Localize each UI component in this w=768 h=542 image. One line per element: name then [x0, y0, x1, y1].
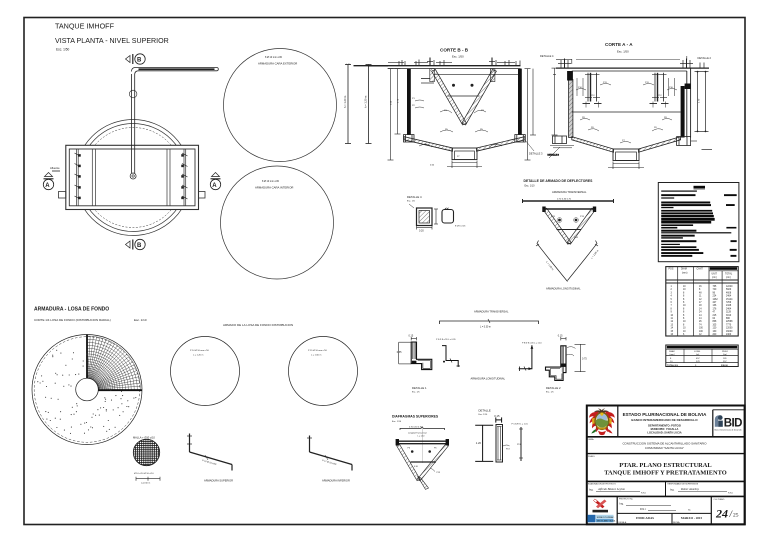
svg-text:0.70 0.30 0.70: 0.70 0.30 0.70: [409, 426, 423, 428]
svg-text:DIAM: DIAM: [681, 268, 687, 271]
svg-text:L = 1.20 m: L = 1.20 m: [193, 355, 203, 357]
svg-text:Esc. 1/5: Esc. 1/5: [546, 392, 554, 394]
svg-text:7770: 7770: [726, 324, 732, 326]
svg-text:ARMADURA TRANSVERSAL: ARMADURA TRANSVERSAL: [552, 190, 587, 194]
svg-text:RESPONSABLE DE SUPERVISION: RESPONSABLE DE SUPERVISION: [668, 483, 699, 486]
svg-text:DETALLE 1: DETALLE 1: [412, 386, 427, 390]
svg-text:OBRA:: OBRA:: [588, 438, 594, 441]
svg-text:Esc. 1/5: Esc. 1/5: [407, 201, 416, 203]
svg-text:0.20: 0.20: [419, 230, 424, 233]
svg-text:(mm): (mm): [682, 272, 688, 274]
svg-text:L = 3.30 m: L = 3.30 m: [480, 327, 491, 329]
svg-text:0.15: 0.15: [409, 335, 414, 338]
svg-text:C.H. PLANO:: C.H. PLANO:: [714, 498, 726, 501]
svg-text:L=0.50 m: L=0.50 m: [141, 483, 150, 485]
svg-text:Rober Azurduy: Rober Azurduy: [680, 487, 700, 491]
svg-text:R.N.I.: R.N.I.: [640, 508, 646, 511]
svg-text:DETALLE 3: DETALLE 3: [548, 154, 560, 157]
svg-text:LOCALIDAD: SANTA LUCIA: LOCALIDAD: SANTA LUCIA: [647, 430, 681, 434]
svg-text:R.N.I.: R.N.I.: [641, 493, 647, 495]
svg-text:BANCO INTERAMERICANO DE DESARR: BANCO INTERAMERICANO DE DESARROLLO: [631, 418, 698, 422]
svg-text:MIN. M. AMB. Y AGUA: MIN. M. AMB. Y AGUA: [597, 520, 616, 523]
svg-text:Esc. 1/50: Esc. 1/50: [452, 55, 464, 59]
svg-text:Esc. 1/10: Esc. 1/10: [134, 318, 147, 322]
svg-text:PTAR. PLANO ESTRUCTURAL: PTAR. PLANO ESTRUCTURAL: [619, 462, 711, 469]
svg-text:25: 25: [733, 513, 739, 519]
svg-text:A: A: [212, 183, 217, 189]
svg-text:15144: 15144: [726, 299, 733, 301]
svg-text:Ing.: Ing.: [589, 488, 594, 492]
svg-text:4608: 4608: [726, 292, 732, 294]
svg-text:Alfredo Blanco Leyton: Alfredo Blanco Leyton: [597, 487, 626, 491]
svg-text:0.55: 0.55: [397, 351, 402, 354]
svg-text:DETALLE 2: DETALLE 2: [698, 56, 712, 60]
svg-text:DETALLE DE ARMADO DE DEFLECTOR: DETALLE DE ARMADO DE DEFLECTORES: [524, 179, 594, 183]
svg-text:TOTAL KG: TOTAL KG: [667, 364, 678, 367]
svg-text:UNIT: UNIT: [712, 274, 718, 276]
svg-text:24: 24: [715, 507, 728, 521]
svg-text:Ing.: Ing.: [620, 502, 625, 506]
svg-text:B: B: [137, 243, 142, 249]
svg-text:1128: 1128: [726, 312, 732, 314]
svg-text:(cm): (cm): [726, 277, 731, 279]
svg-text:8 Ø 10 mm c/20: 8 Ø 10 mm c/20: [265, 56, 283, 59]
svg-text:TANQUE IMHOFF Y PRETRATAMIENTO: TANQUE IMHOFF Y PRETRATAMIENTO: [604, 470, 727, 477]
svg-text:0.15: 0.15: [494, 414, 500, 418]
svg-text:PLANO:: PLANO:: [588, 455, 595, 458]
svg-text:LONG: LONG: [694, 351, 700, 353]
svg-text:CONSTRUCCION SISTEMA DE ALCANT: CONSTRUCCION SISTEMA DE ALCANTARILLADO S…: [622, 442, 707, 446]
svg-text:8 Ø 10 mm c/20: 8 Ø 10 mm c/20: [262, 180, 280, 183]
svg-text:Esc. 1/10: Esc. 1/10: [479, 414, 489, 416]
svg-text:Esc. 1/5: Esc. 1/5: [412, 392, 420, 394]
svg-text:ESTADO PLURINAC.: ESTADO PLURINAC.: [597, 516, 615, 519]
svg-text:E Ø 6 c/15: E Ø 6 c/15: [455, 226, 466, 228]
svg-text:Esc. 1/50: Esc. 1/50: [617, 50, 629, 54]
svg-text:12240: 12240: [726, 286, 733, 288]
svg-text:ELABORACION DE PROYECTO: ELABORACION DE PROYECTO: [588, 483, 616, 486]
svg-text:0.75: 0.75: [582, 357, 587, 360]
svg-text:3010: 3010: [726, 315, 732, 317]
svg-text:A: A: [45, 183, 50, 189]
svg-text:h = 1.20 m: h = 1.20 m: [343, 96, 347, 108]
svg-text:2400: 2400: [726, 334, 732, 336]
svg-text:POS: POS: [669, 269, 674, 271]
svg-text:ARMADURA INFERIOR: ARMADURA INFERIOR: [322, 479, 350, 483]
svg-text:DETALLE 4: DETALLE 4: [407, 195, 422, 199]
svg-text:FECHA:: FECHA:: [673, 521, 680, 524]
svg-text:ARMADURA TRANSVERSAL: ARMADURA TRANSVERSAL: [474, 310, 509, 314]
svg-text:12000: 12000: [726, 328, 733, 330]
svg-text:ARMADURA SUPERIOR: ARMADURA SUPERIOR: [204, 479, 233, 483]
svg-text:P 13 Ø 8 L = 1.15: P 13 Ø 8 L = 1.15: [512, 424, 529, 426]
svg-text:BID: BID: [724, 417, 742, 429]
svg-text:ARMADO DE LA LOSA DE FONDO DIS: ARMADO DE LA LOSA DE FONDO DISTRIBUCION: [223, 323, 293, 327]
svg-text:MARZO - 2015: MARZO - 2015: [681, 516, 703, 520]
svg-text:Ø 10 c/10 Ø 10 c/10: Ø 10 c/10 Ø 10 c/10: [134, 473, 154, 475]
svg-text:538.00: 538.00: [721, 365, 728, 367]
svg-text:P 15 Ø 10 mm c/10: P 15 Ø 10 mm c/10: [308, 350, 328, 352]
svg-text:L = 1.60 m: L = 1.60 m: [311, 355, 321, 357]
svg-text:CORTE A - A: CORTE A - A: [605, 42, 633, 47]
svg-text:PESO: PESO: [722, 351, 728, 353]
svg-text:(mm): (mm): [670, 354, 675, 356]
svg-text:P 14 Ø 10 mm c/10: P 14 Ø 10 mm c/10: [190, 350, 210, 352]
svg-text:ARMADURA - LOSA DE FONDO: ARMADURA - LOSA DE FONDO: [34, 307, 109, 313]
svg-text:INDICADAS: INDICADAS: [636, 516, 654, 520]
svg-text:B: B: [137, 58, 142, 64]
svg-text:ARMADURA LONGITUDINAL: ARMADURA LONGITUDINAL: [471, 377, 506, 381]
svg-text:0.70 0.30 0.70: 0.70 0.30 0.70: [557, 199, 572, 201]
svg-text:L = 1.10: L = 1.10: [418, 435, 425, 437]
svg-text:TOTAL: TOTAL: [725, 273, 733, 276]
svg-text:1.20: 1.20: [476, 441, 482, 445]
svg-text:h = 1.20 m: h = 1.20 m: [364, 96, 368, 108]
svg-text:Esc. 1/10: Esc. 1/10: [392, 421, 402, 423]
svg-text:2448: 2448: [726, 305, 732, 307]
svg-text:DETALLE: DETALLE: [479, 409, 491, 413]
svg-text:MALLA + Ø10 c/10: MALLA + Ø10 c/10: [133, 436, 155, 440]
svg-text:DIAFRAGMAS SUPERIORES: DIAFRAGMAS SUPERIORES: [392, 415, 439, 419]
svg-text:Esc. 1/50: Esc. 1/50: [56, 48, 70, 52]
svg-text:DETALLE 3: DETALLE 3: [529, 152, 543, 156]
svg-text:(cm): (cm): [712, 277, 717, 279]
svg-text:No.: No.: [688, 510, 691, 512]
svg-text:P 9 Ø 8 c/20 L = 0.95: P 9 Ø 8 c/20 L = 0.95: [436, 339, 456, 341]
svg-text:1262: 1262: [713, 299, 719, 301]
svg-text:DETALLE 2: DETALLE 2: [546, 386, 561, 390]
svg-text:Banco Interamericano de Desarr: Banco Interamericano de Desarrollo: [715, 428, 742, 431]
svg-text:TANQUE IMHOFF: TANQUE IMHOFF: [55, 22, 115, 31]
svg-text:ESCALA:: ESCALA:: [619, 521, 627, 524]
svg-text:DEPARTAMENTO: POTOSI: DEPARTAMENTO: POTOSI: [648, 423, 681, 427]
svg-text:VISTA PLANTA - NIVEL SUPERIOR: VISTA PLANTA - NIVEL SUPERIOR: [55, 37, 169, 45]
svg-text:ARMADURA CARA INTERIOR: ARMADURA CARA INTERIOR: [255, 186, 293, 190]
svg-text:DIAM: DIAM: [669, 350, 675, 353]
svg-text:2464: 2464: [726, 296, 732, 298]
svg-text:CANT: CANT: [697, 268, 704, 271]
svg-text:0.15: 0.15: [558, 335, 563, 338]
svg-text:5920: 5920: [726, 289, 732, 291]
svg-text:COMUNIDAD "SANTA LUCIA": COMUNIDAD "SANTA LUCIA": [645, 446, 684, 450]
svg-text:Ing.: Ing.: [670, 488, 675, 492]
svg-text:ARMADURA LONGITUDINAL: ARMADURA LONGITUDINAL: [546, 287, 581, 291]
svg-text:22568: 22568: [726, 321, 733, 323]
svg-text:R.N.I.: R.N.I.: [728, 493, 734, 495]
svg-text:(m): (m): [696, 354, 700, 356]
svg-text:CORTE B - B: CORTE B - B: [440, 48, 469, 53]
svg-text:P 8 Ø 8 c/20 L = 1.10: P 8 Ø 8 c/20 L = 1.10: [522, 342, 542, 344]
svg-text:16000: 16000: [726, 331, 733, 333]
svg-text:MUNICIPIO: YOCALLA: MUNICIPIO: YOCALLA: [651, 427, 679, 431]
svg-text:ESTADO PLURINACIONAL DE BOLIVI: ESTADO PLURINACIONAL DE BOLIVIA: [623, 412, 708, 417]
svg-text:DETALLE 4: DETALLE 4: [540, 54, 554, 58]
svg-text:2464: 2464: [726, 308, 732, 310]
svg-text:Esc. 1/10: Esc. 1/10: [525, 185, 536, 188]
svg-text:ARMADURA CARA EXTERIOR: ARMADURA CARA EXTERIOR: [258, 62, 297, 66]
svg-text:Afluente: Afluente: [50, 166, 60, 170]
svg-text:PROYECTO No.: PROYECTO No.: [619, 499, 634, 501]
svg-text:7259: 7259: [726, 302, 732, 304]
svg-text:Longitud Transversal: Longitud Transversal: [408, 431, 427, 434]
svg-text:CORTE 1/4 LOSA DE FONDO (DISTR: CORTE 1/4 LOSA DE FONDO (DISTRIBUCION RA…: [34, 318, 111, 322]
svg-text:(kg): (kg): [723, 354, 727, 356]
